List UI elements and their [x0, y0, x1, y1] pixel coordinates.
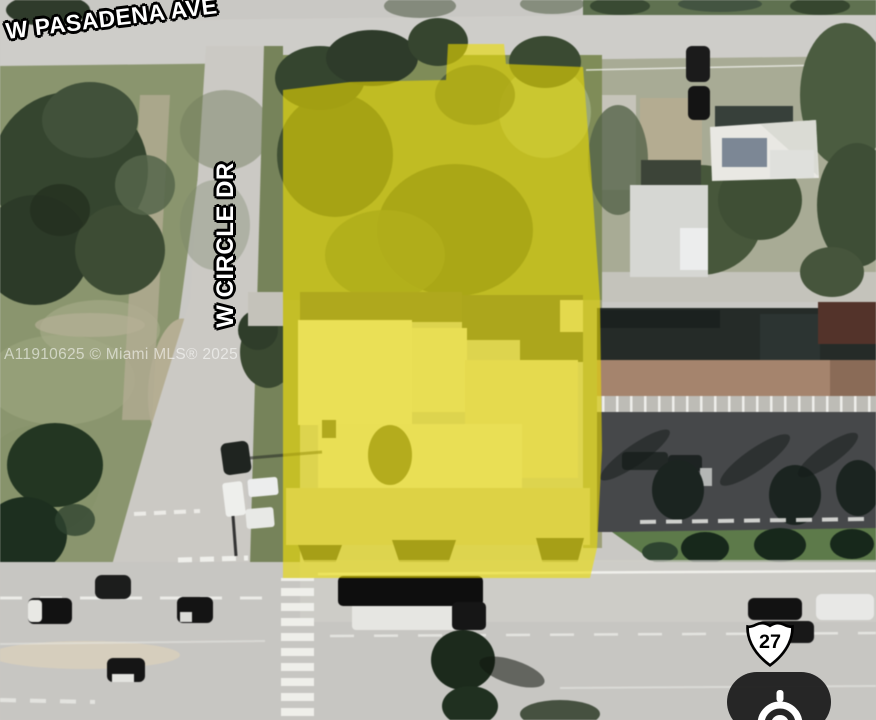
top-green-strip — [583, 0, 876, 15]
gps-locate-icon — [727, 672, 831, 720]
locate-me-button[interactable] — [727, 672, 831, 720]
route-number: 27 — [759, 631, 781, 653]
us-route-shield-icon: 27 — [745, 620, 795, 670]
crosswalk — [281, 578, 314, 716]
highlighted-parcel-overlay — [283, 44, 602, 578]
commercial-building-right — [595, 302, 876, 568]
street-label-circle-dr: W CIRCLE DR — [212, 162, 240, 327]
mls-watermark: A11910625 © Miami MLS® 2025 — [4, 346, 238, 364]
aerial-map-view[interactable]: W PASADENA AVE W CIRCLE DR A11910625 © M… — [0, 0, 876, 720]
